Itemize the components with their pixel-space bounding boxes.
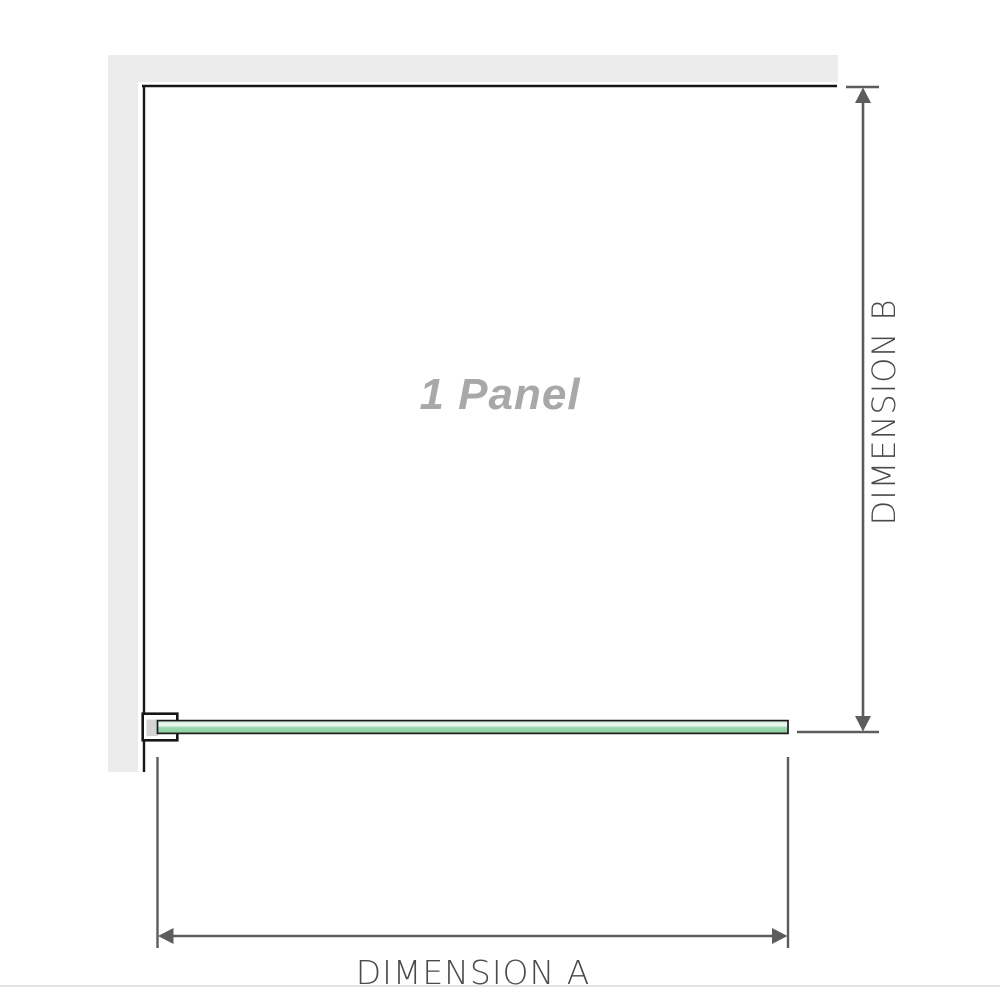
wall-top [108,55,838,82]
panel-count-label: 1 Panel [350,373,650,417]
dim-a-arrow-right-icon [772,928,788,944]
shower-screen-diagram: 1 Panel DIMENSION A DIMENSION B [0,0,1000,1000]
dim-b-arrow-down-icon [855,716,871,732]
glass-panel [158,721,789,734]
dimension-a-label: DIMENSION A [273,956,673,989]
wall-left [108,55,138,772]
dim-b-arrow-up-icon [855,88,871,104]
bracket-inner-pad [147,720,159,737]
dim-a-arrow-left-icon [158,928,174,944]
diagram-canvas [0,0,1000,1000]
dimension-b-label: DIMENSION B [868,299,900,526]
